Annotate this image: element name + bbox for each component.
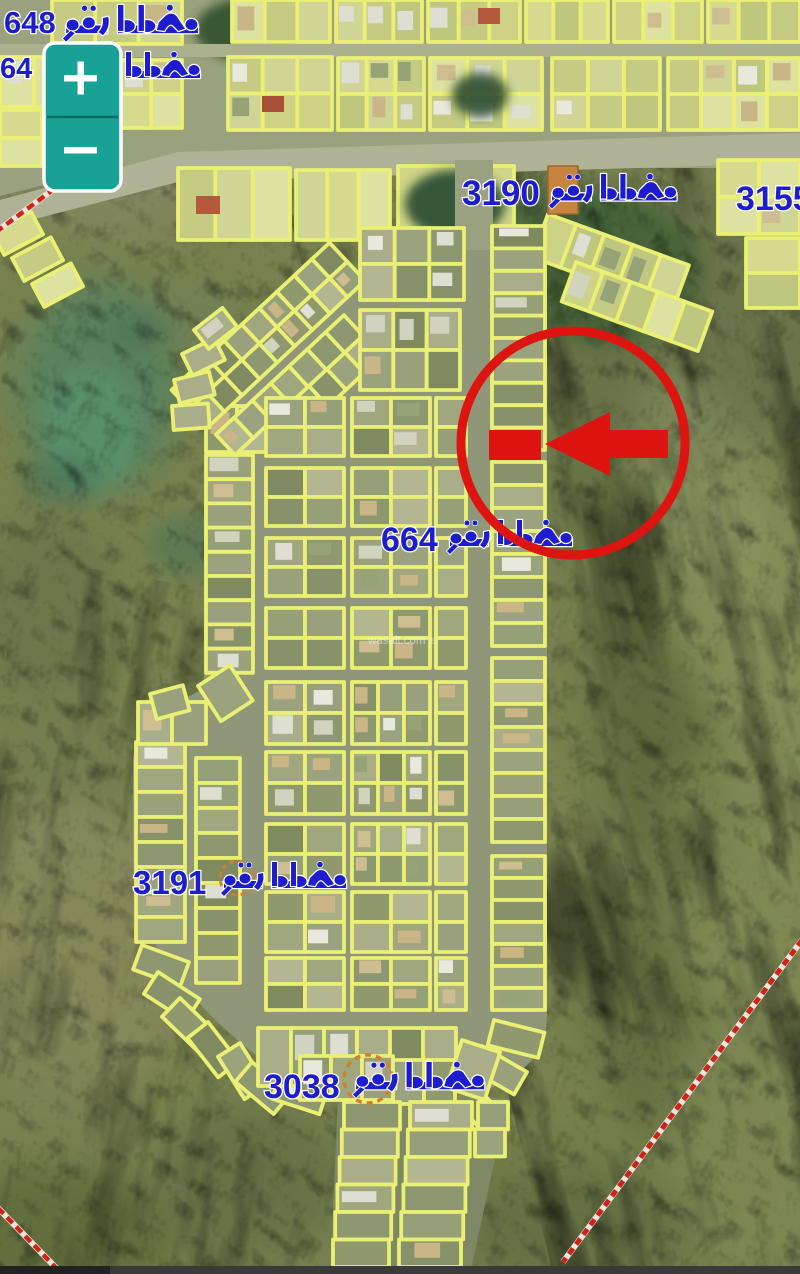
svg-text:3190: 3190 <box>462 174 540 213</box>
svg-text:3191: 3191 <box>133 864 206 901</box>
svg-text:wasalt.com ®: wasalt.com ® <box>367 635 436 647</box>
svg-text:664: 664 <box>381 521 438 559</box>
svg-text:3155: 3155 <box>736 180 800 218</box>
svg-text:648: 648 <box>4 5 56 40</box>
svg-text:3038: 3038 <box>264 1068 340 1106</box>
svg-text:64: 64 <box>0 53 32 85</box>
